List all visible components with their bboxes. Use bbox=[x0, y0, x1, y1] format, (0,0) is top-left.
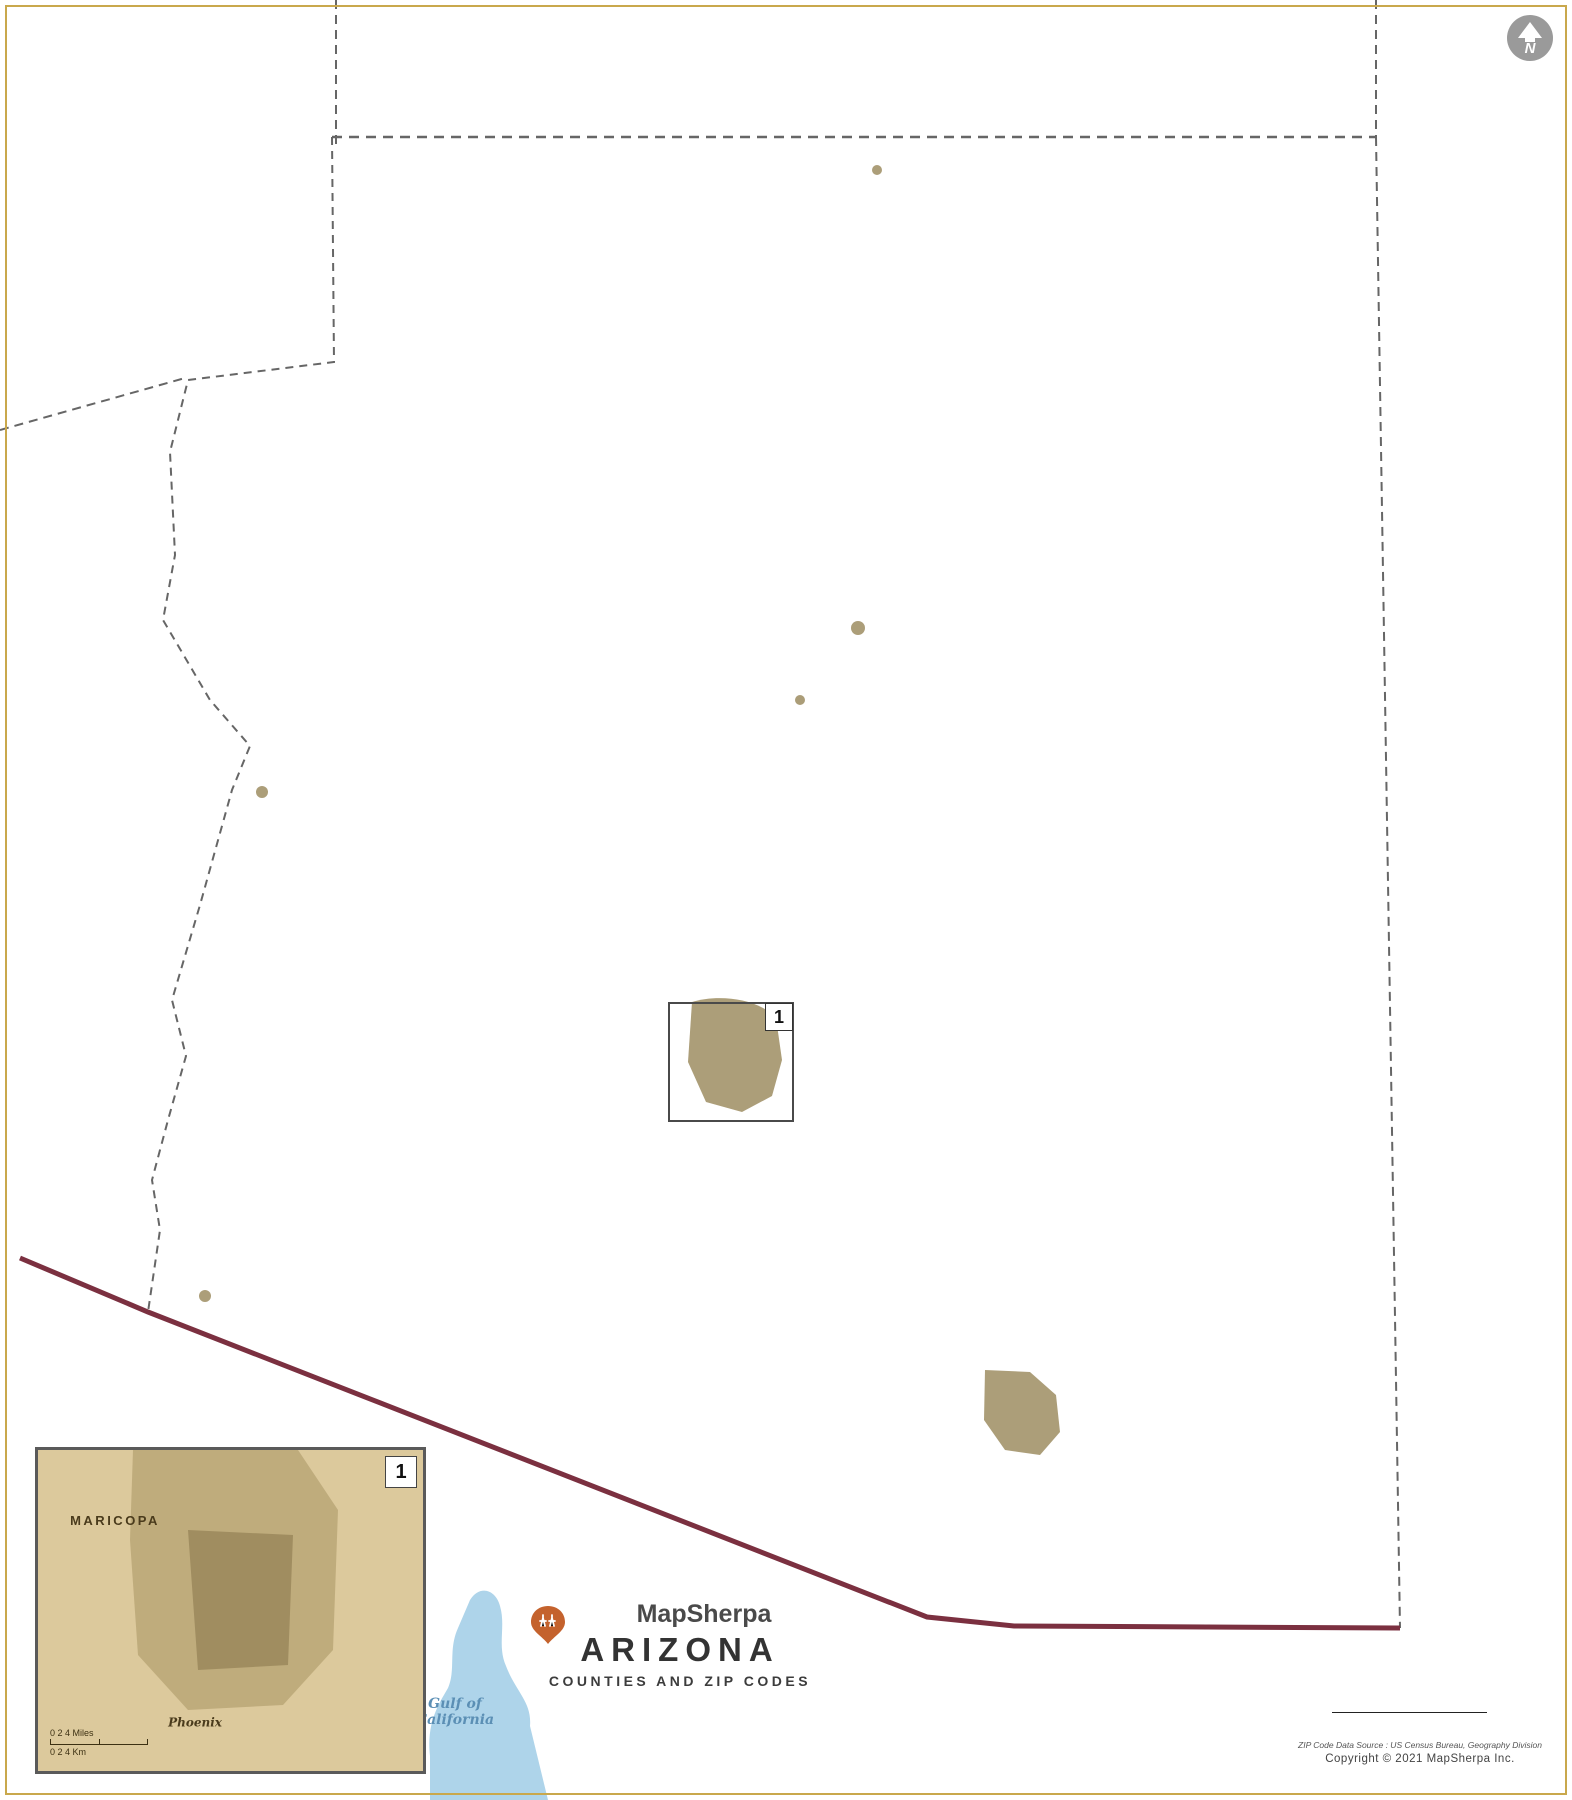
inset-reference-number: 1 bbox=[765, 1003, 793, 1031]
inset-scale-bar-line bbox=[50, 1739, 148, 1745]
scale-km-labels bbox=[1320, 1718, 1572, 1732]
inset-scale-miles: 0 2 4 Miles bbox=[50, 1728, 148, 1738]
scale-bar-line bbox=[1320, 1708, 1572, 1716]
inset-county-label: MARICOPA bbox=[70, 1514, 160, 1528]
credits-block: ZIP Code Data Source : US Census Bureau,… bbox=[1180, 1740, 1572, 1765]
phoenix-inset-reference-box: 1 bbox=[668, 1002, 794, 1122]
gulf-of-california-label: Gulf of California bbox=[416, 1696, 494, 1728]
legend-block: MapSherpa ARIZONA COUNTIES AND ZIP CODES bbox=[530, 1600, 830, 1697]
copyright-notice: Copyright © 2021 MapSherpa Inc. bbox=[1180, 1753, 1572, 1765]
phoenix-inset-map: MARICOPA Phoenix 1 0 2 4 Miles 0 2 4 Km bbox=[35, 1447, 426, 1774]
inset-metro-core bbox=[188, 1530, 293, 1670]
data-source-credit: ZIP Code Data Source : US Census Bureau,… bbox=[1180, 1740, 1572, 1750]
inset-number-badge: 1 bbox=[385, 1456, 417, 1488]
inset-city-label: Phoenix bbox=[168, 1717, 222, 1730]
brand-name: MapSherpa bbox=[637, 1600, 772, 1629]
map-title: ARIZONA bbox=[530, 1631, 830, 1669]
map-canvas: N Gulf of California 1 MARICOPA P bbox=[0, 0, 1572, 1800]
inset-scale-km: 0 2 4 Km bbox=[50, 1747, 148, 1757]
scale-miles-labels bbox=[1320, 1694, 1572, 1708]
map-subtitle: COUNTIES AND ZIP CODES bbox=[530, 1673, 830, 1689]
scale-bar bbox=[1320, 1694, 1572, 1732]
inset-urban-svg bbox=[38, 1450, 423, 1771]
inset-scale-bar: 0 2 4 Miles 0 2 4 Km bbox=[50, 1728, 148, 1757]
